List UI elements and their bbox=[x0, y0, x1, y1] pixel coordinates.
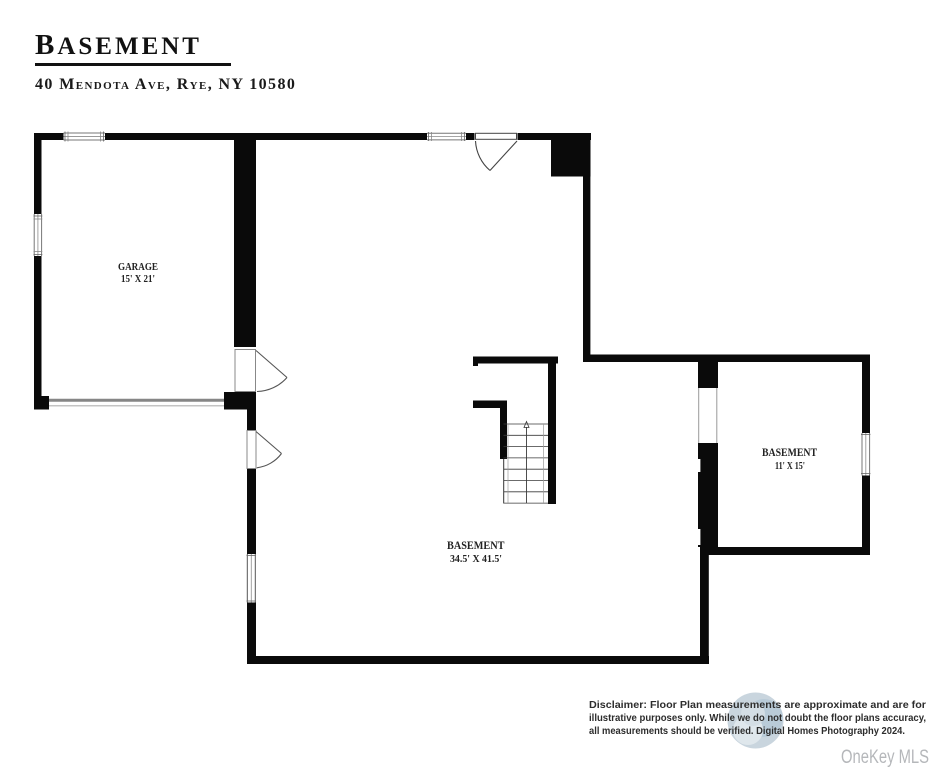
svg-text:OneKey MLS: OneKey MLS bbox=[841, 747, 929, 768]
svg-text:all measurements should be ver: all measurements should be verified. Dig… bbox=[589, 725, 905, 737]
svg-text:illustrative purposes only. Wh: illustrative purposes only. While we do … bbox=[589, 712, 926, 724]
svg-text:Disclaimer: Floor Plan measu: Disclaimer: Floor Plan measurements are … bbox=[589, 699, 926, 711]
